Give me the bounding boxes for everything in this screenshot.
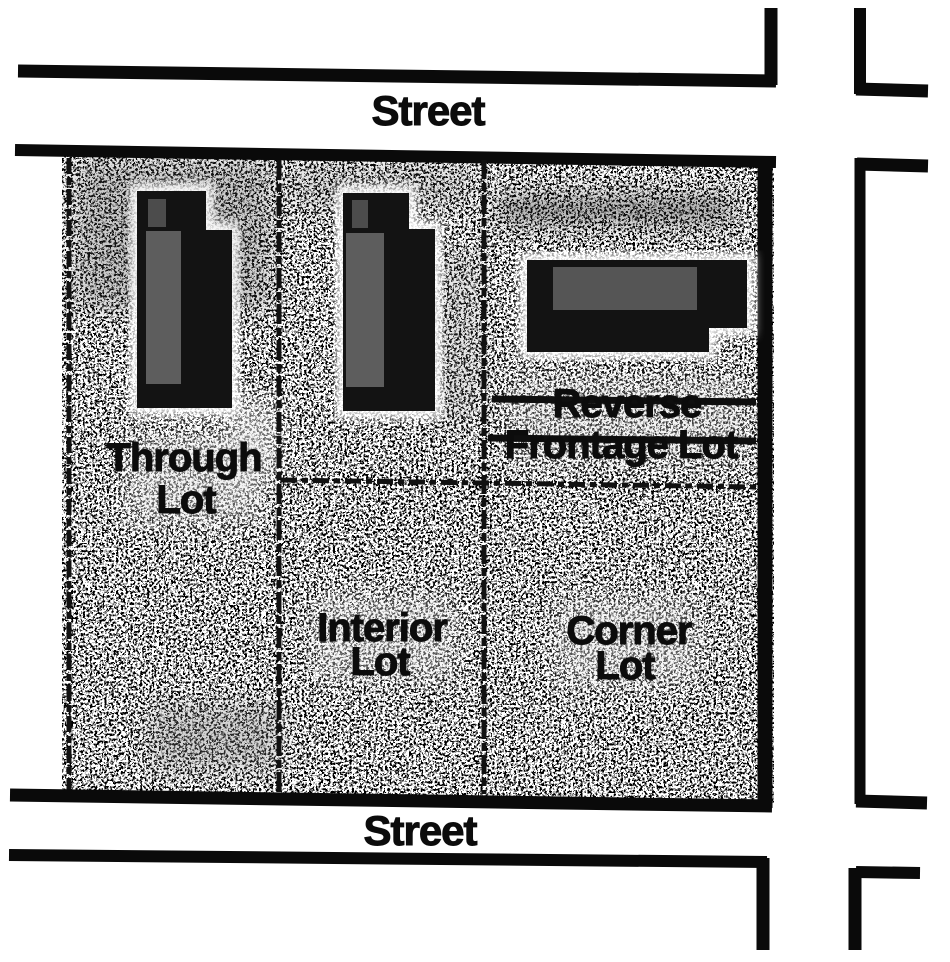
svg-text:Lot: Lot — [156, 478, 216, 522]
svg-text:Frontage Lot: Frontage Lot — [505, 423, 738, 467]
svg-text:Reverse: Reverse — [553, 382, 702, 426]
svg-text:Through: Through — [106, 436, 261, 480]
svg-text:Lot: Lot — [595, 644, 655, 688]
svg-text:Lot: Lot — [350, 640, 410, 684]
svg-text:Street: Street — [371, 87, 485, 134]
svg-text:Street: Street — [363, 807, 477, 854]
